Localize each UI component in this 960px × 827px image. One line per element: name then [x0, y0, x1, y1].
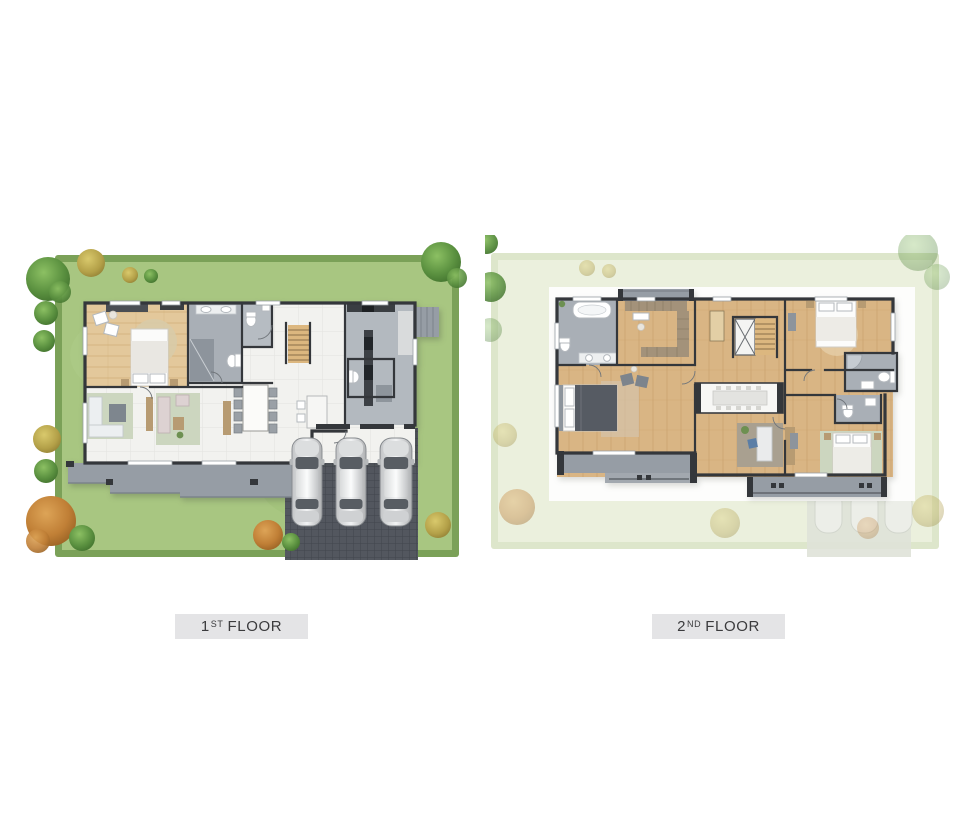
floor-word: FLOOR — [705, 618, 760, 635]
second-floor-drawing — [485, 235, 955, 565]
desk-chair — [747, 438, 758, 449]
desk — [757, 427, 772, 461]
ghost-dining-table — [713, 391, 767, 405]
nightstand — [858, 301, 866, 308]
toilet-icon — [878, 371, 895, 383]
desk — [790, 433, 798, 449]
void-opening — [695, 383, 783, 413]
family-nook — [737, 423, 795, 467]
bathroom — [188, 303, 242, 383]
pantry — [398, 311, 413, 355]
linen-closet — [710, 311, 724, 341]
stool — [297, 401, 305, 409]
nightstand — [824, 433, 831, 440]
nightstand — [121, 379, 129, 386]
first-floor-drawing — [10, 235, 470, 565]
bathroom-3 — [835, 395, 881, 423]
bed — [816, 301, 856, 347]
armchair — [176, 395, 189, 406]
bathroom-2 — [845, 353, 897, 391]
dining-table — [243, 385, 268, 431]
powder-room — [348, 359, 362, 397]
bed — [833, 433, 871, 475]
second-floor-plan — [485, 235, 955, 565]
stairwell — [735, 319, 775, 355]
floor-word: FLOOR — [227, 618, 282, 635]
kitchen-island — [307, 396, 327, 428]
console — [146, 397, 153, 431]
stairs — [288, 325, 310, 363]
plant-icon — [559, 301, 565, 307]
toilet-icon — [227, 354, 241, 368]
side-table — [173, 417, 184, 430]
coffee-table — [109, 404, 126, 422]
sofa — [158, 397, 170, 433]
floor-number: 2 — [677, 618, 686, 635]
sink — [861, 381, 874, 389]
floor-plan-sheet: 1STFLOOR 2NDFLOOR — [0, 0, 960, 827]
nightstand — [170, 379, 178, 386]
bedroom — [85, 303, 188, 387]
bed — [131, 329, 168, 386]
floor-number: 1 — [201, 618, 210, 635]
nightstand — [806, 301, 814, 308]
console — [223, 401, 231, 435]
bed — [559, 385, 617, 431]
wc — [242, 303, 272, 347]
nightstand — [874, 433, 881, 440]
plant-icon — [177, 432, 184, 439]
floor-ordinal: ST — [211, 620, 224, 629]
master-bathroom — [557, 299, 617, 365]
house-second-floor — [555, 289, 897, 497]
balcony-right — [747, 477, 887, 497]
stool — [297, 414, 305, 422]
dresser — [633, 313, 649, 320]
dresser — [788, 313, 796, 331]
floor-ordinal: ND — [687, 620, 701, 629]
parked-cars — [290, 438, 415, 526]
first-floor-label: 1STFLOOR — [175, 614, 308, 639]
sink — [865, 398, 876, 406]
first-floor-plan — [10, 235, 470, 565]
second-floor-label: 2NDFLOOR — [652, 614, 785, 639]
fridge — [376, 385, 392, 402]
plant-icon — [741, 426, 749, 434]
armchair — [104, 323, 119, 337]
double-vanity — [579, 353, 617, 363]
